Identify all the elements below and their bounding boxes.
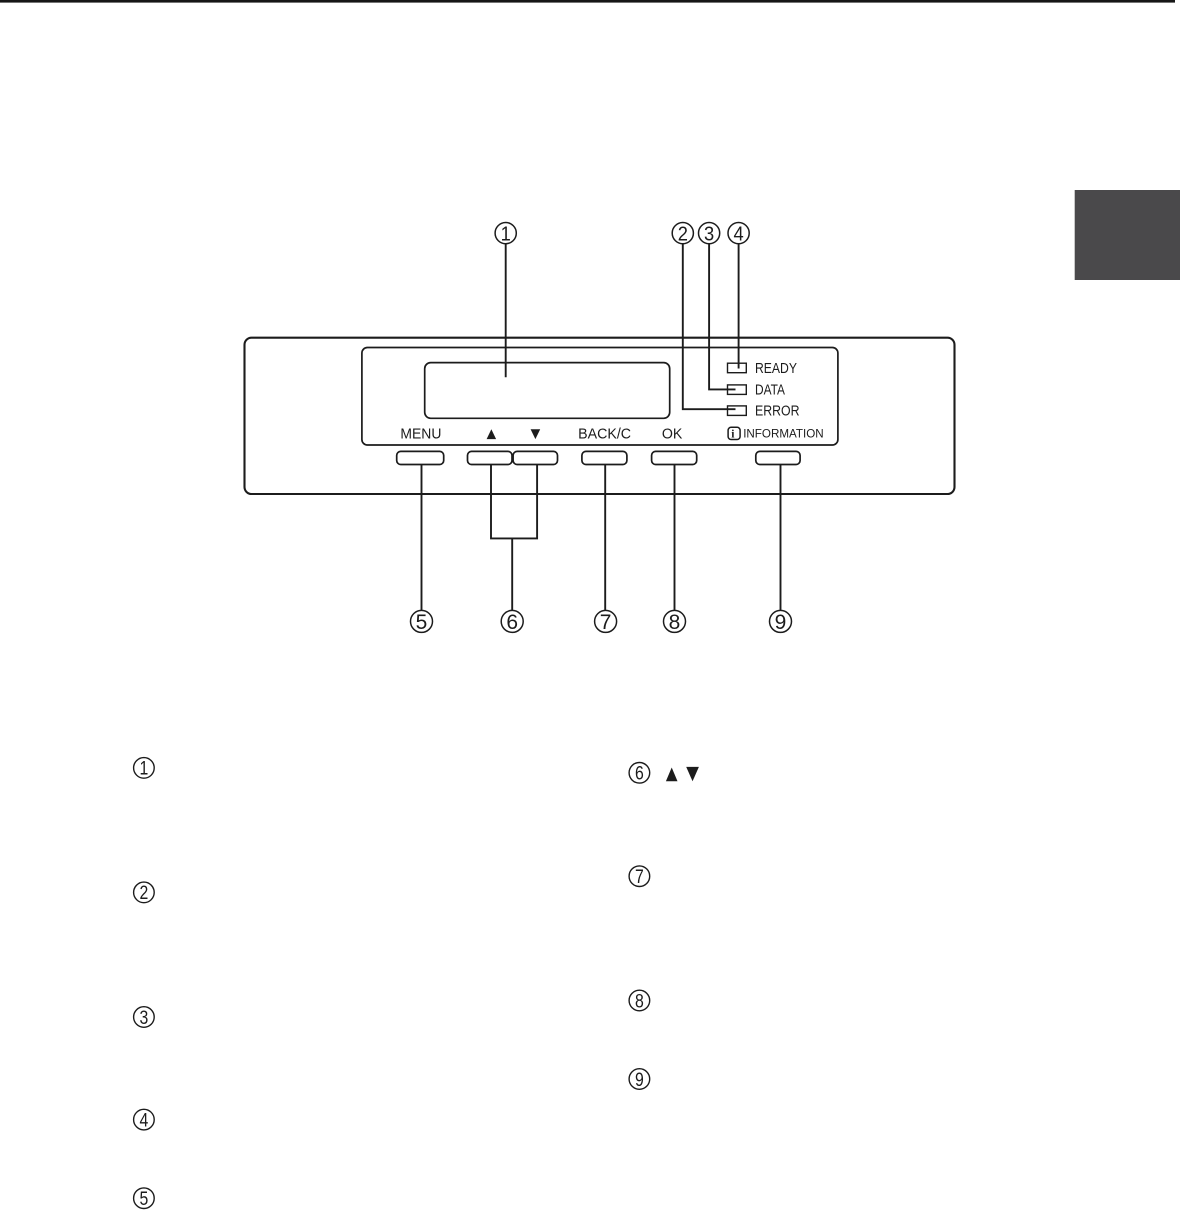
svg-text:9: 9 (635, 1070, 644, 1091)
svg-text:6: 6 (635, 764, 644, 785)
svg-text:DATA: DATA (755, 383, 785, 399)
svg-text:8: 8 (635, 991, 644, 1012)
svg-text:1: 1 (140, 759, 149, 780)
svg-text:6: 6 (506, 611, 518, 634)
svg-text:7: 7 (600, 611, 612, 634)
svg-text:2: 2 (678, 223, 688, 245)
svg-text:4: 4 (734, 223, 744, 245)
svg-text:4: 4 (140, 1110, 149, 1131)
svg-text:9: 9 (775, 611, 787, 634)
svg-text:READY: READY (755, 361, 797, 377)
svg-text:1: 1 (501, 223, 511, 245)
svg-text:INFORMATION: INFORMATION (743, 426, 824, 440)
svg-text:2: 2 (140, 883, 149, 904)
svg-text:3: 3 (140, 1008, 149, 1029)
svg-text:5: 5 (416, 611, 428, 634)
svg-text:ERROR: ERROR (755, 404, 800, 420)
svg-text:BACK/C: BACK/C (578, 427, 631, 443)
svg-text:MENU: MENU (400, 427, 441, 443)
svg-text:5: 5 (140, 1189, 149, 1210)
svg-text:3: 3 (704, 223, 714, 245)
svg-text:8: 8 (669, 611, 681, 634)
svg-text:OK: OK (662, 427, 683, 443)
svg-text:7: 7 (635, 867, 644, 888)
